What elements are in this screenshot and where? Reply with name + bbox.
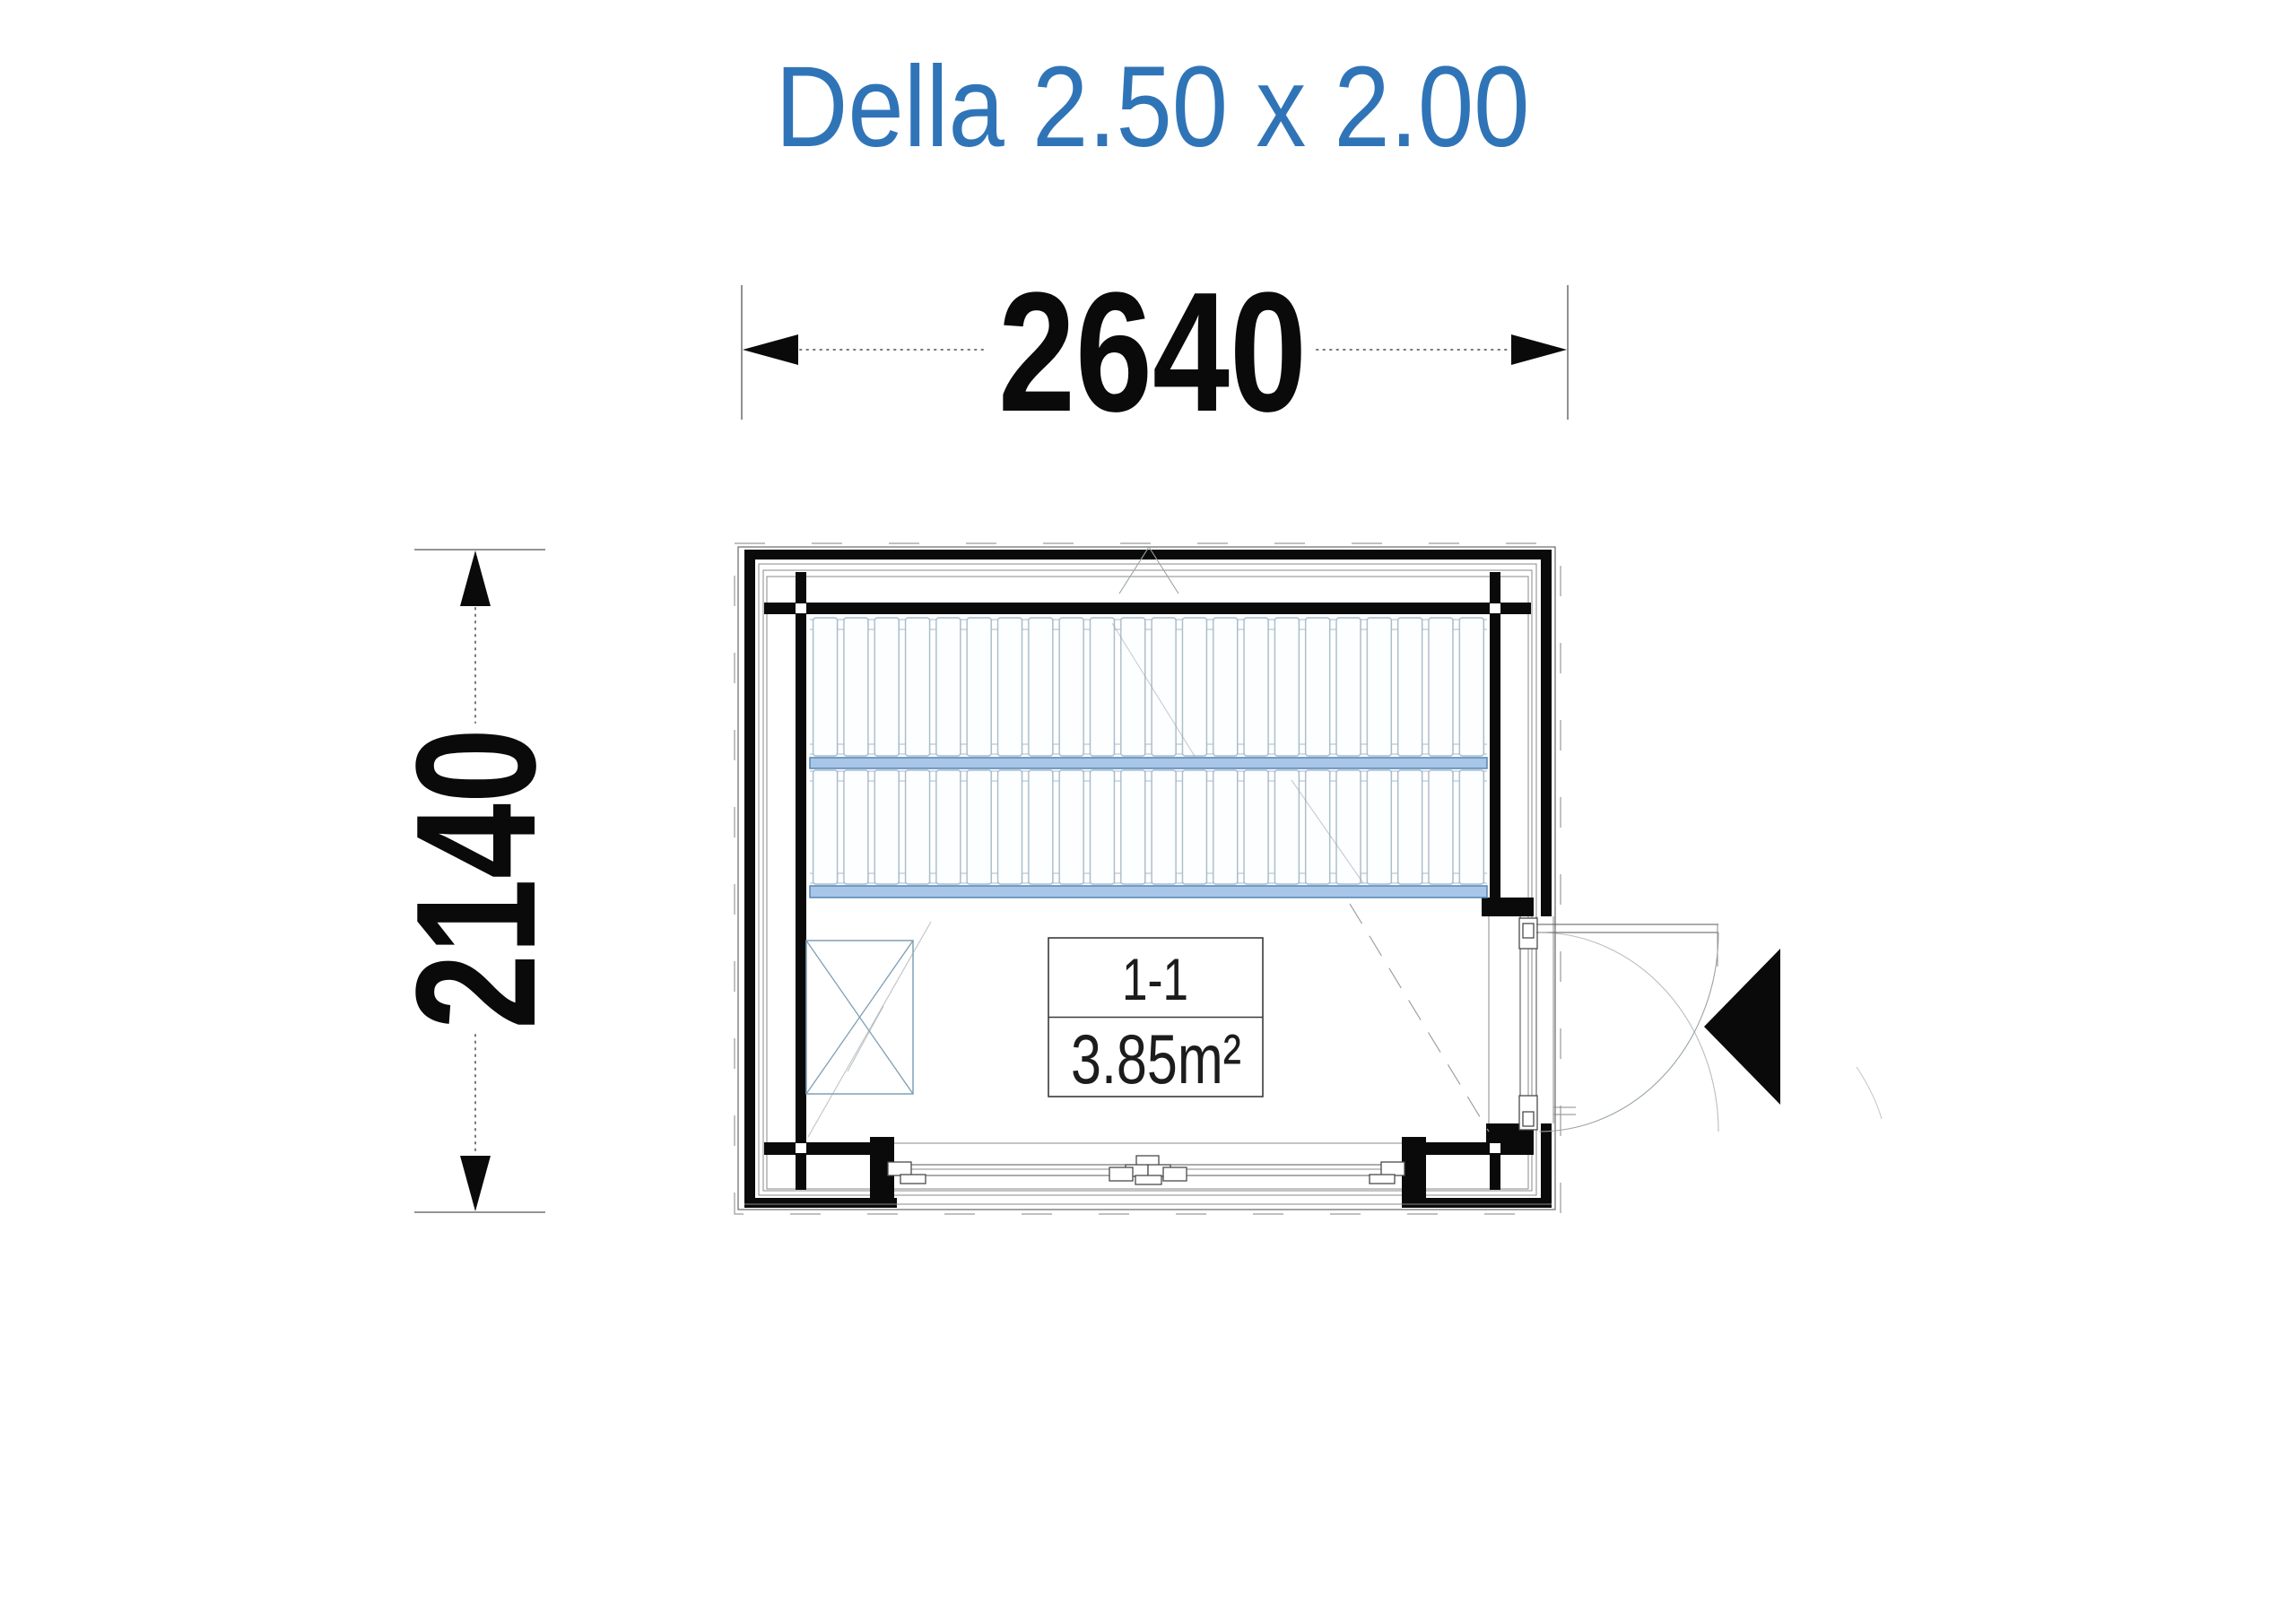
room-area: 3.85m² — [1071, 1019, 1241, 1098]
height-dimension-label: 2140 — [381, 728, 571, 1029]
bench-edge-band-lower — [810, 886, 1487, 898]
door-swing-arc — [1539, 932, 1718, 1132]
dimension-width: 2640 — [742, 257, 1568, 447]
arrow-left-icon — [743, 334, 798, 365]
casement-symbol — [900, 1175, 926, 1184]
bench-slats-lower — [810, 768, 1487, 886]
joint-node — [796, 1143, 806, 1153]
arrow-down-icon — [460, 1156, 491, 1211]
casement-symbol — [888, 1162, 911, 1175]
door-inswing-line — [1350, 904, 1489, 1132]
room-number: 1-1 — [1122, 946, 1188, 1012]
arrow-right-icon — [1511, 334, 1567, 365]
door-hinge-block — [1523, 1112, 1534, 1126]
door-swing-arc — [1539, 932, 1718, 1132]
joint-node — [1490, 1143, 1500, 1153]
door-swing-arc-fragment — [1857, 1067, 1882, 1119]
room-label-box: 1-1 3.85m² — [1048, 938, 1263, 1098]
casement-symbol — [1136, 1156, 1159, 1166]
entrance-door — [1350, 904, 1882, 1132]
post-left — [796, 572, 806, 1190]
casement-symbol — [1109, 1167, 1133, 1181]
casement-symbol — [1381, 1162, 1405, 1175]
wall-right-upper — [1541, 550, 1552, 916]
bench-slats-upper — [810, 616, 1487, 758]
floor-plan-canvas: Della 2.50 x 2.00 2640 2140 — [0, 0, 2296, 1622]
door-hinge-block — [1523, 924, 1534, 938]
page-title: Della 2.50 x 2.00 — [776, 43, 1530, 171]
casement-symbol — [1135, 1175, 1161, 1184]
heater-crossed-box — [806, 941, 913, 1094]
entrance-arrow-icon — [1704, 949, 1780, 1105]
beam-top — [764, 603, 1531, 614]
casement-symbol — [1370, 1175, 1395, 1184]
dimension-height: 2140 — [381, 550, 571, 1212]
wall-right-lower — [1541, 1123, 1552, 1208]
width-dimension-label: 2640 — [998, 257, 1307, 447]
wall-left — [744, 550, 755, 1208]
window-jamb-right-block — [1402, 1137, 1426, 1208]
joint-node — [796, 603, 806, 613]
joint-node — [1490, 603, 1500, 613]
wall-top — [744, 550, 1552, 559]
floor-plan: 1-1 3.85m² — [735, 543, 1882, 1214]
door-lintel-block — [1482, 898, 1534, 916]
bench-edge-band-upper — [810, 758, 1487, 768]
post-right-upper — [1490, 572, 1500, 916]
casement-symbol — [1163, 1167, 1187, 1181]
arrow-up-icon — [460, 551, 491, 606]
